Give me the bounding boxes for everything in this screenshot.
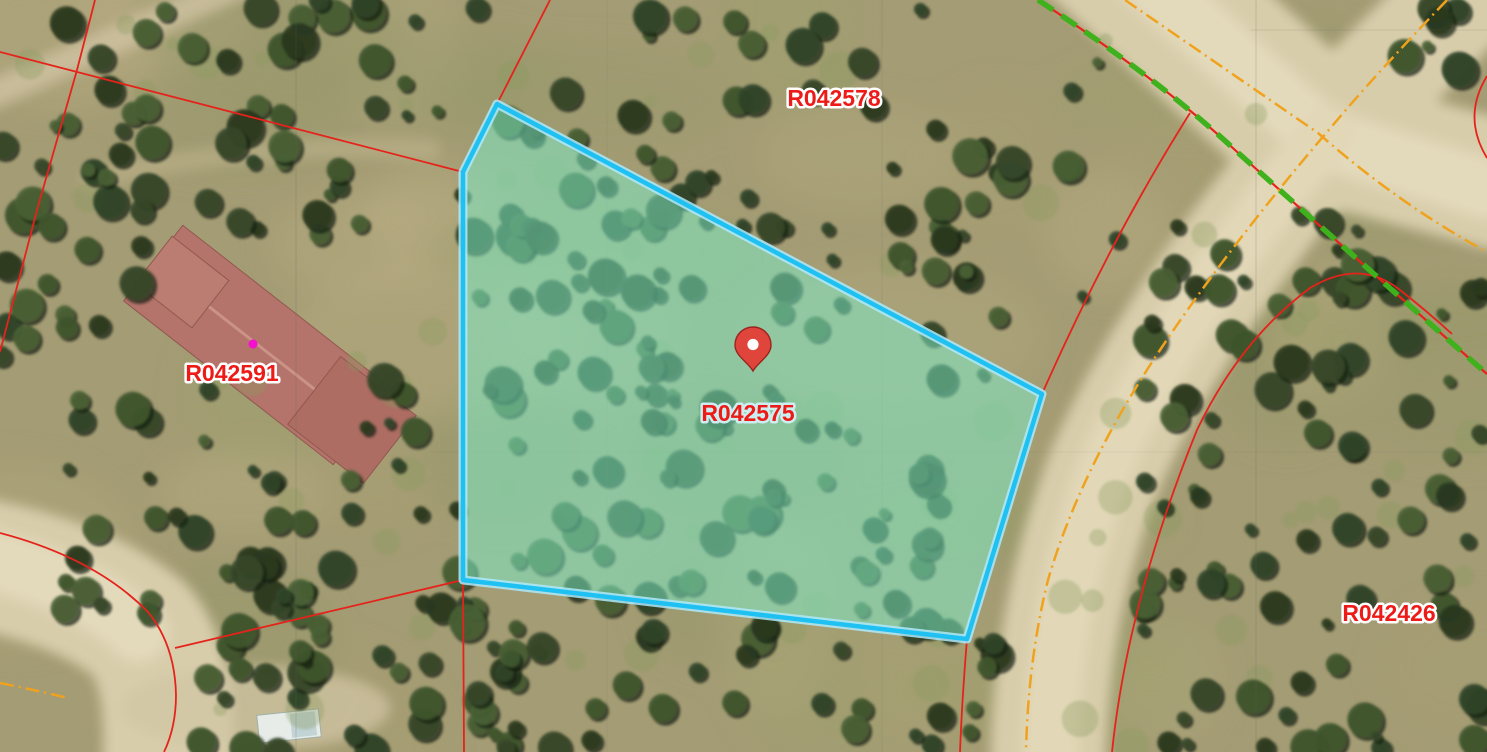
parcel-point-marker <box>249 340 258 349</box>
parcel-label-r042578: R042578 <box>787 85 881 111</box>
parcel-label-r042591: R042591 <box>185 360 279 386</box>
parcel-label-r042575: R042575 <box>701 400 795 426</box>
parcel-label-r042426: R042426 <box>1342 600 1435 626</box>
parcel-map-canvas[interactable]: R042578 R042591 R042575 R042426 <box>0 0 1487 752</box>
parcel-map-viewport[interactable]: R042578 R042591 R042575 R042426 <box>0 0 1487 752</box>
